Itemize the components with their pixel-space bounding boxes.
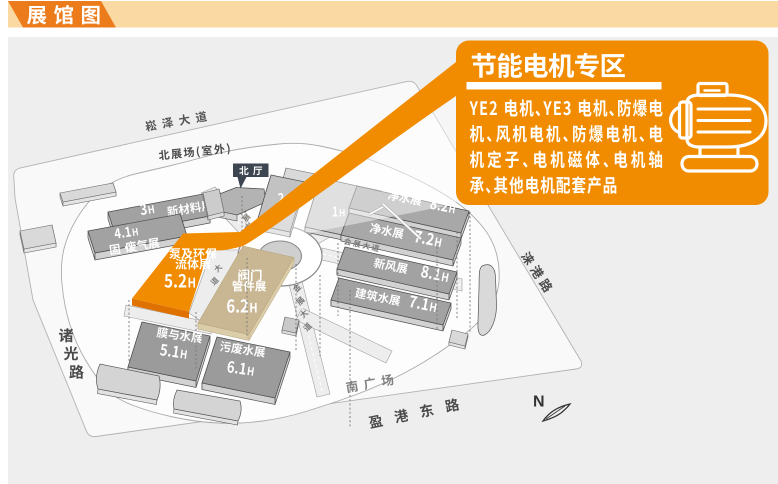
svg-text:N: N xyxy=(533,394,545,411)
